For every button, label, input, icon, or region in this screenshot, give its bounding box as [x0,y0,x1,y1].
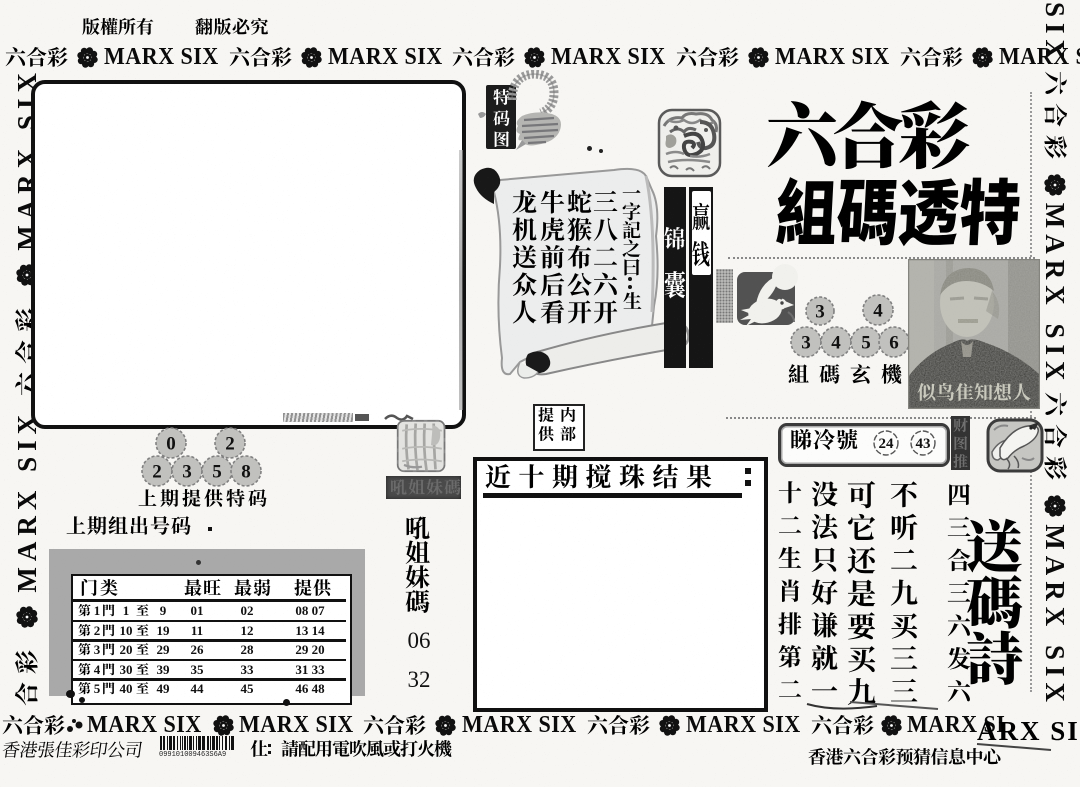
svg-text:2: 2 [225,433,235,454]
svg-text:3: 3 [801,332,811,353]
svg-text:24: 24 [879,436,895,452]
svg-text:8: 8 [241,461,251,482]
svg-text:0: 0 [166,433,176,454]
svg-text:5: 5 [212,461,222,482]
svg-text:4: 4 [873,300,883,321]
svg-text:3: 3 [182,461,192,482]
svg-text:4: 4 [831,332,841,353]
svg-text:6: 6 [889,332,899,353]
svg-text:3: 3 [815,301,825,322]
svg-text:5: 5 [861,332,871,353]
svg-text:2: 2 [152,461,162,482]
svg-text:43: 43 [916,436,931,452]
